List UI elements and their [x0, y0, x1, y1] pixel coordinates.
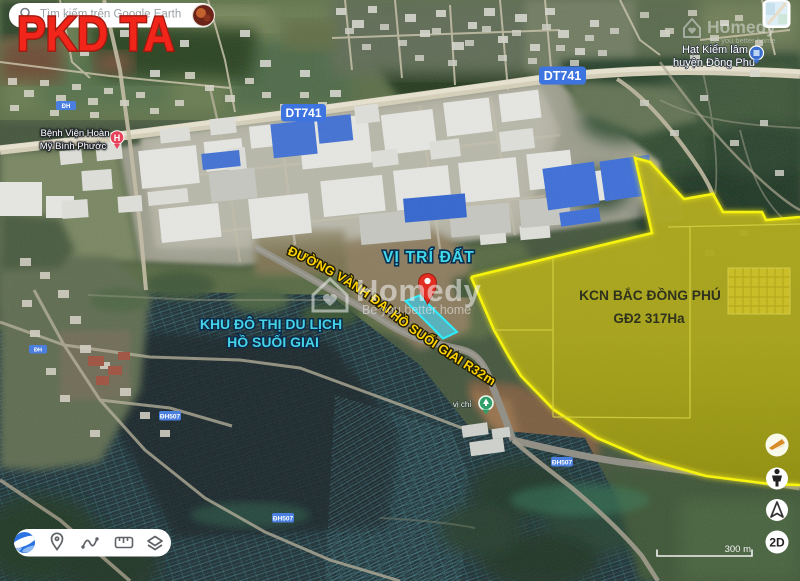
svg-text:2D: 2D [769, 536, 785, 550]
svg-text:Hạt Kiểm lâm: Hạt Kiểm lâm [682, 44, 748, 56]
svg-text:Mỹ Bình Phước: Mỹ Bình Phước [40, 141, 107, 152]
svg-text:ĐH: ĐH [62, 104, 71, 110]
svg-text:VỊ TRÍ ĐẤT: VỊ TRÍ ĐẤT [383, 249, 475, 266]
svg-text:PKD TA: PKD TA [17, 6, 175, 61]
svg-text:ĐH: ĐH [34, 348, 42, 354]
svg-text:ĐH507: ĐH507 [273, 516, 294, 523]
svg-text:Bệnh Viện Hoàn: Bệnh Viện Hoàn [40, 128, 109, 139]
svg-text:KHU ĐÔ THỊ DU LỊCH: KHU ĐÔ THỊ DU LỊCH [200, 315, 342, 332]
svg-text:300 m: 300 m [725, 544, 751, 555]
svg-text:HỒ SUỐI GIAI: HỒ SUỐI GIAI [227, 333, 319, 350]
svg-text:vị chỉ: vị chỉ [453, 400, 471, 409]
svg-text:ĐH507: ĐH507 [160, 414, 181, 421]
svg-text:H: H [114, 133, 121, 143]
svg-text:huyện Đồng Phú: huyện Đồng Phú [673, 57, 755, 69]
svg-text:Be you better home: Be you better home [710, 36, 775, 45]
svg-text:DT741: DT741 [544, 69, 582, 83]
svg-text:DT741: DT741 [285, 106, 321, 120]
svg-text:ĐH507: ĐH507 [552, 460, 573, 467]
svg-text:Be you better home: Be you better home [362, 303, 471, 317]
